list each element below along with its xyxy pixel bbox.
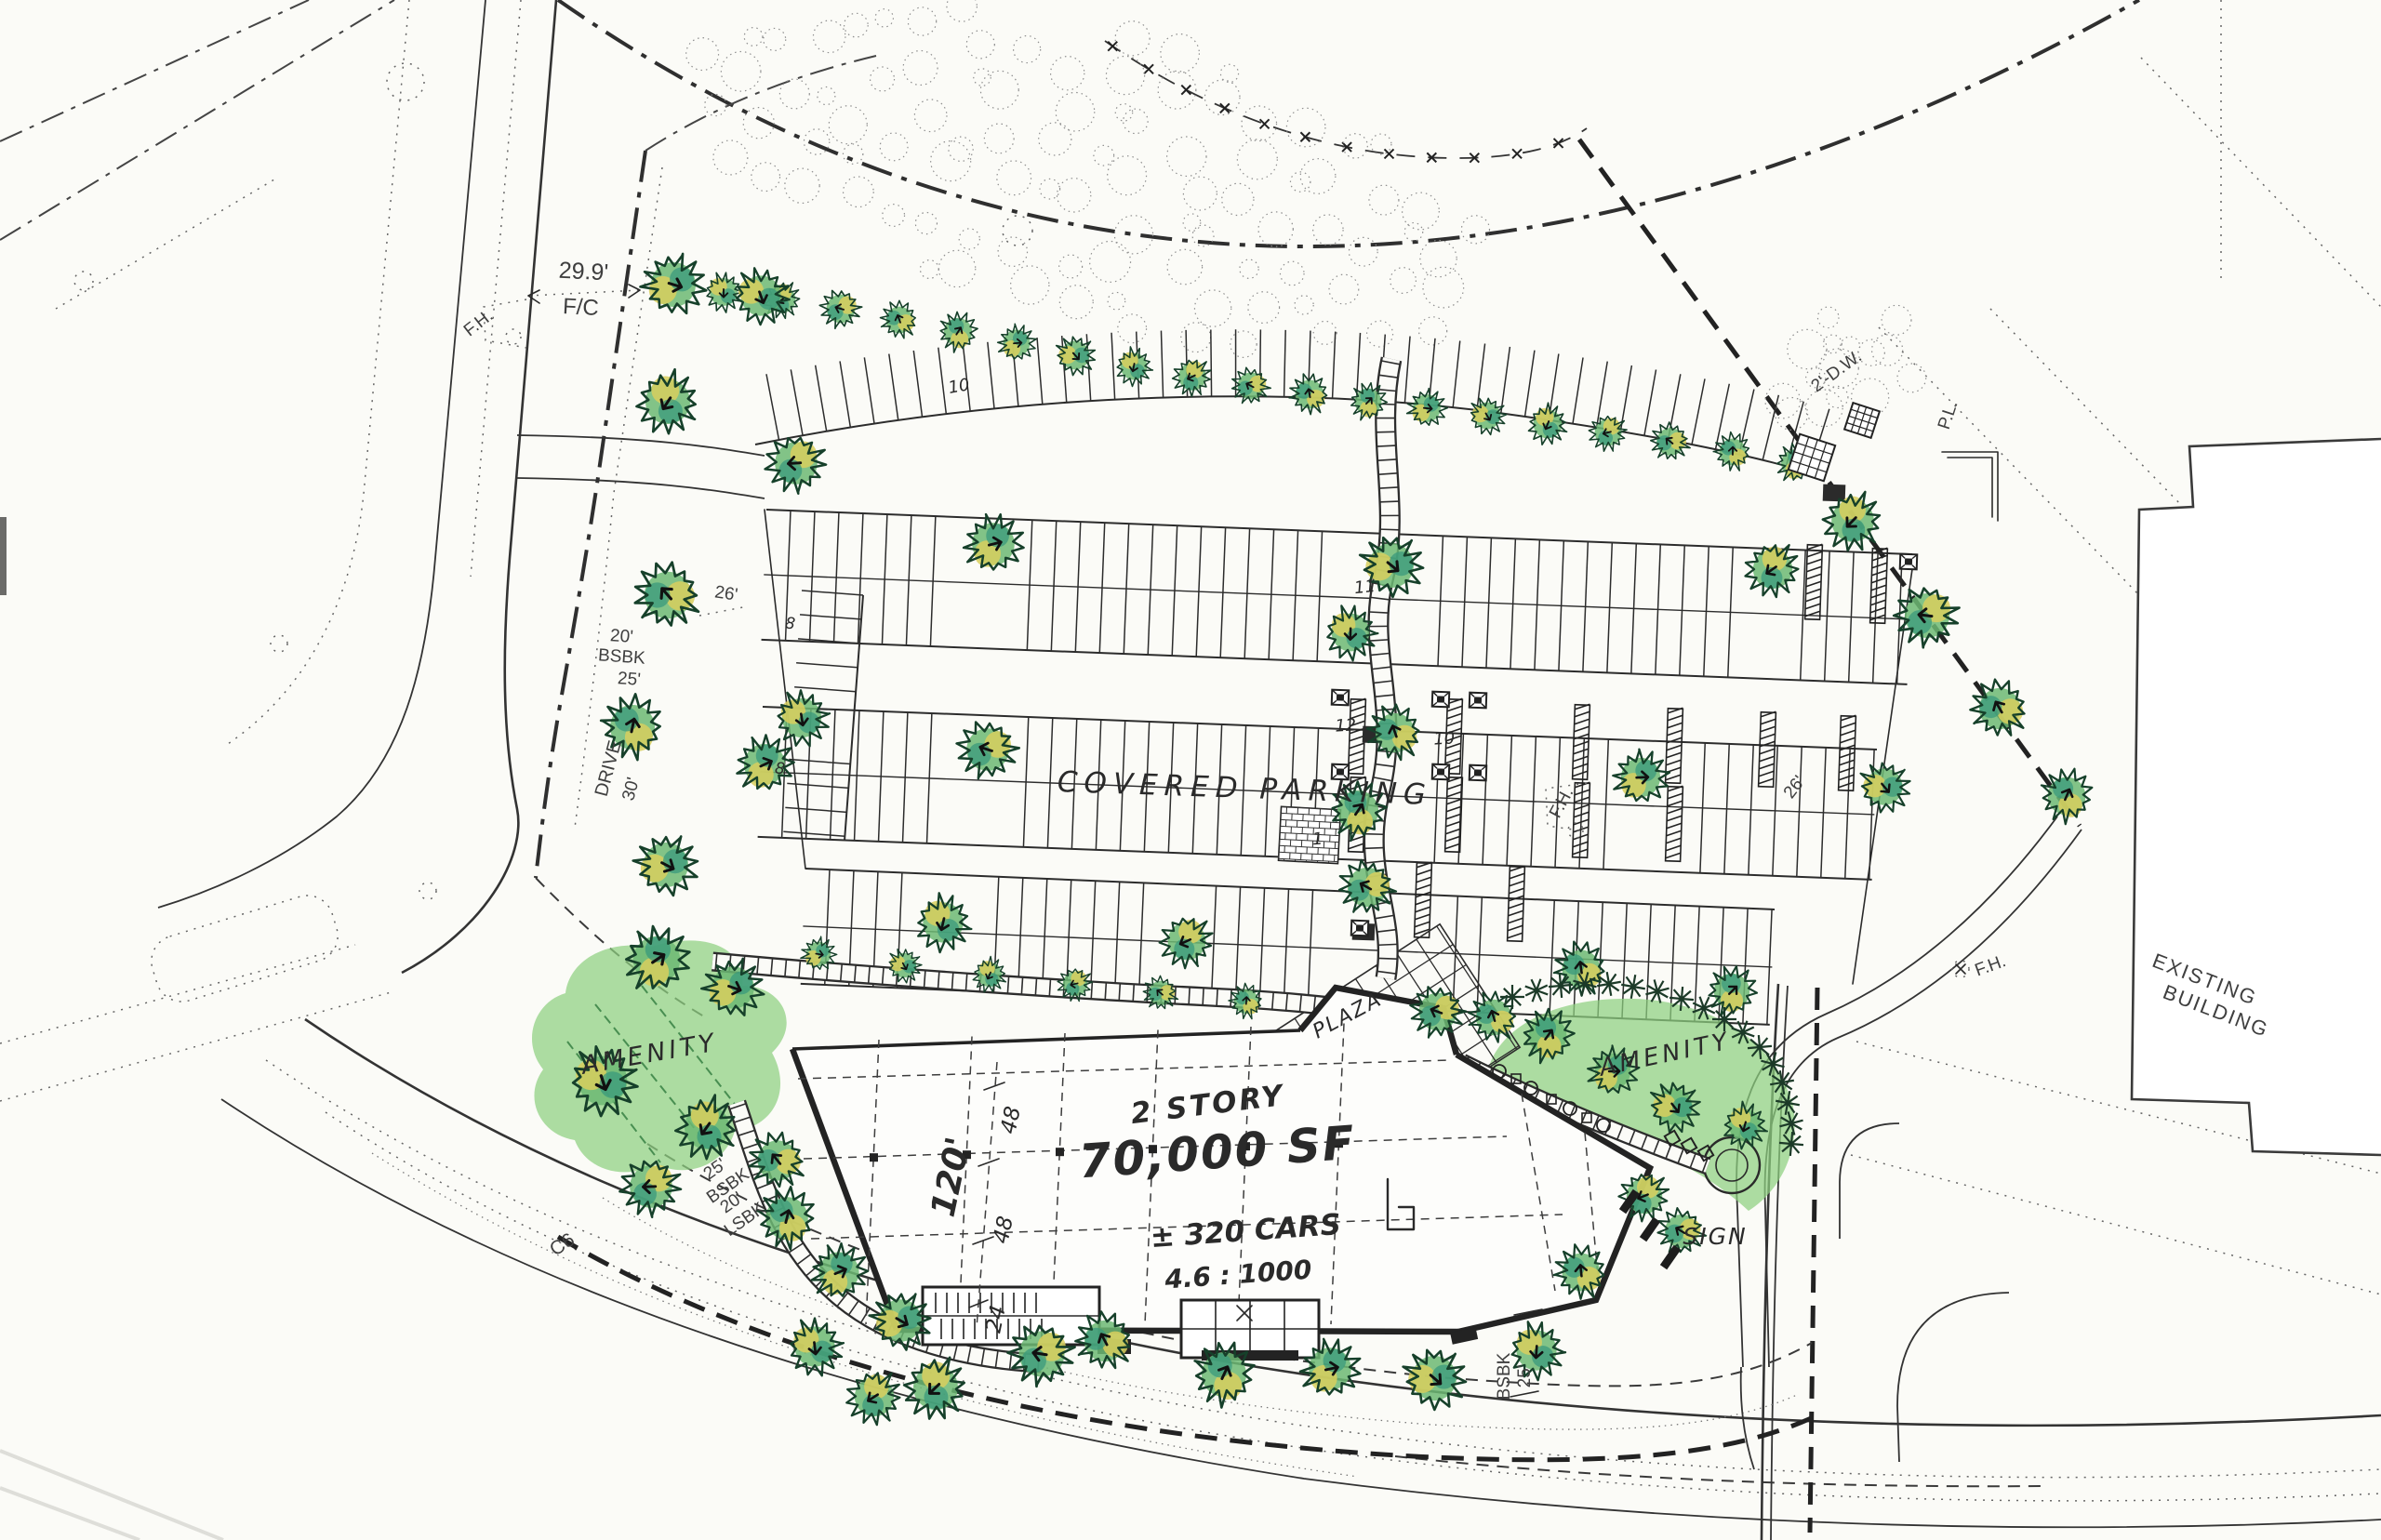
carport-hatch <box>1508 866 1525 942</box>
tree-icon <box>627 361 712 447</box>
property-arc <box>558 0 2139 246</box>
sign-label: SIGN <box>1683 1223 1747 1250</box>
tree-icon <box>1049 326 1105 382</box>
bus-pad <box>145 889 344 1008</box>
dim-drive-width: 30' <box>619 776 644 803</box>
tree-icon <box>1285 370 1330 418</box>
tree-icon <box>635 245 714 320</box>
carport-hatch <box>1415 862 1432 938</box>
dim-bsbk-w-label: BSBK <box>597 645 645 669</box>
dim-dw: 2'-D.W. <box>1808 347 1866 396</box>
dim-fc-sub: F/C <box>562 294 599 321</box>
tree-icon <box>707 272 743 312</box>
parking-light-icon <box>1470 693 1487 709</box>
west-road-west-curb <box>158 0 486 908</box>
tree-icon <box>774 686 834 750</box>
fh-label-east: F.H. <box>1973 951 2009 980</box>
stall-count-row4: 1 <box>1311 830 1324 850</box>
east-property-line <box>1810 988 1817 1533</box>
stall-count-top: 10 <box>947 375 971 398</box>
tree-icon <box>1464 390 1514 441</box>
tree-icon <box>1642 416 1696 469</box>
tree-icon <box>1612 748 1671 803</box>
tree-icon <box>949 716 1024 789</box>
tree-icon <box>1736 534 1812 609</box>
scanned-site-plan-page: COVERED PARKING 2 STORY 70,000 SF ± 320 … <box>0 0 2381 1540</box>
carport-hatch <box>1445 777 1463 853</box>
tree-icon <box>1225 363 1275 412</box>
west-road-east-curb <box>402 0 556 973</box>
tree-icon <box>874 296 921 344</box>
paver-panel <box>1279 806 1341 863</box>
carport-hatch <box>1870 548 1888 624</box>
tree-icon <box>996 322 1038 361</box>
existing-building-outline <box>2132 439 2381 1155</box>
tree-icon <box>1851 750 1922 822</box>
fh-label-west: F.H. <box>460 306 498 340</box>
dim-fc-value: 29.9' <box>558 258 609 286</box>
stone-mulch-area <box>686 0 1926 430</box>
carport-hatch <box>1805 544 1823 620</box>
parking-light-icon <box>1332 690 1350 706</box>
stall-count-west-b: 8 <box>774 760 786 779</box>
parking-light-icon <box>1900 554 1918 570</box>
dim-bsbk-w-25: 25' <box>617 669 641 690</box>
carport-hatch <box>1666 786 1683 862</box>
dim-bsbk-se-label: BSBK <box>1495 1352 1514 1400</box>
tree-icon <box>815 286 865 334</box>
stall-count-row2: 11 <box>1353 577 1377 598</box>
tree-icon <box>1405 386 1449 427</box>
dim-c6: C6 <box>546 1229 579 1261</box>
accent-plant-icon <box>1521 975 1551 1005</box>
stall-count-west-a: 8 <box>784 615 796 634</box>
accent-plant-icon <box>1500 985 1524 1009</box>
parking-light-icon <box>1432 692 1450 708</box>
carport-hatch <box>1839 715 1856 791</box>
carport-hatch <box>1759 711 1776 788</box>
entry-vestibule <box>1181 1300 1319 1361</box>
scan-artifact <box>0 517 7 595</box>
site-plan-drawing: COVERED PARKING 2 STORY 70,000 SF ± 320 … <box>0 0 2381 1540</box>
tree-icon <box>763 435 828 496</box>
tree-icon <box>626 822 711 904</box>
stall-count-row3-left: 12 <box>1335 715 1357 736</box>
tree-icon <box>788 1315 847 1379</box>
dim-bsbk-w-20: 20' <box>609 626 633 647</box>
stair-core <box>923 1287 1099 1345</box>
parking-light-icon <box>1470 765 1487 781</box>
tree-icon <box>1393 1334 1481 1420</box>
tree-icon <box>1114 345 1156 390</box>
trash-enclosure <box>1844 403 1880 438</box>
tree-icon <box>1585 412 1631 456</box>
carport-hatch <box>1573 704 1590 780</box>
dim-aisle-east: 26' <box>1780 772 1810 802</box>
dim-bsbk-se-25: 25' <box>1515 1365 1535 1388</box>
tree-icon <box>837 1362 912 1437</box>
stall-count-row3-right: 10 <box>1433 728 1456 749</box>
dim-pl: P.L. <box>1935 398 1962 431</box>
parking-light-icon <box>1351 921 1369 936</box>
parking-light-icon <box>1432 764 1450 780</box>
dim-aisle-west: 26' <box>713 582 738 604</box>
tree-icon <box>1523 399 1574 451</box>
tree-icon <box>1959 670 2035 748</box>
pl-corner <box>1942 452 1998 521</box>
tree-icon <box>913 890 978 959</box>
